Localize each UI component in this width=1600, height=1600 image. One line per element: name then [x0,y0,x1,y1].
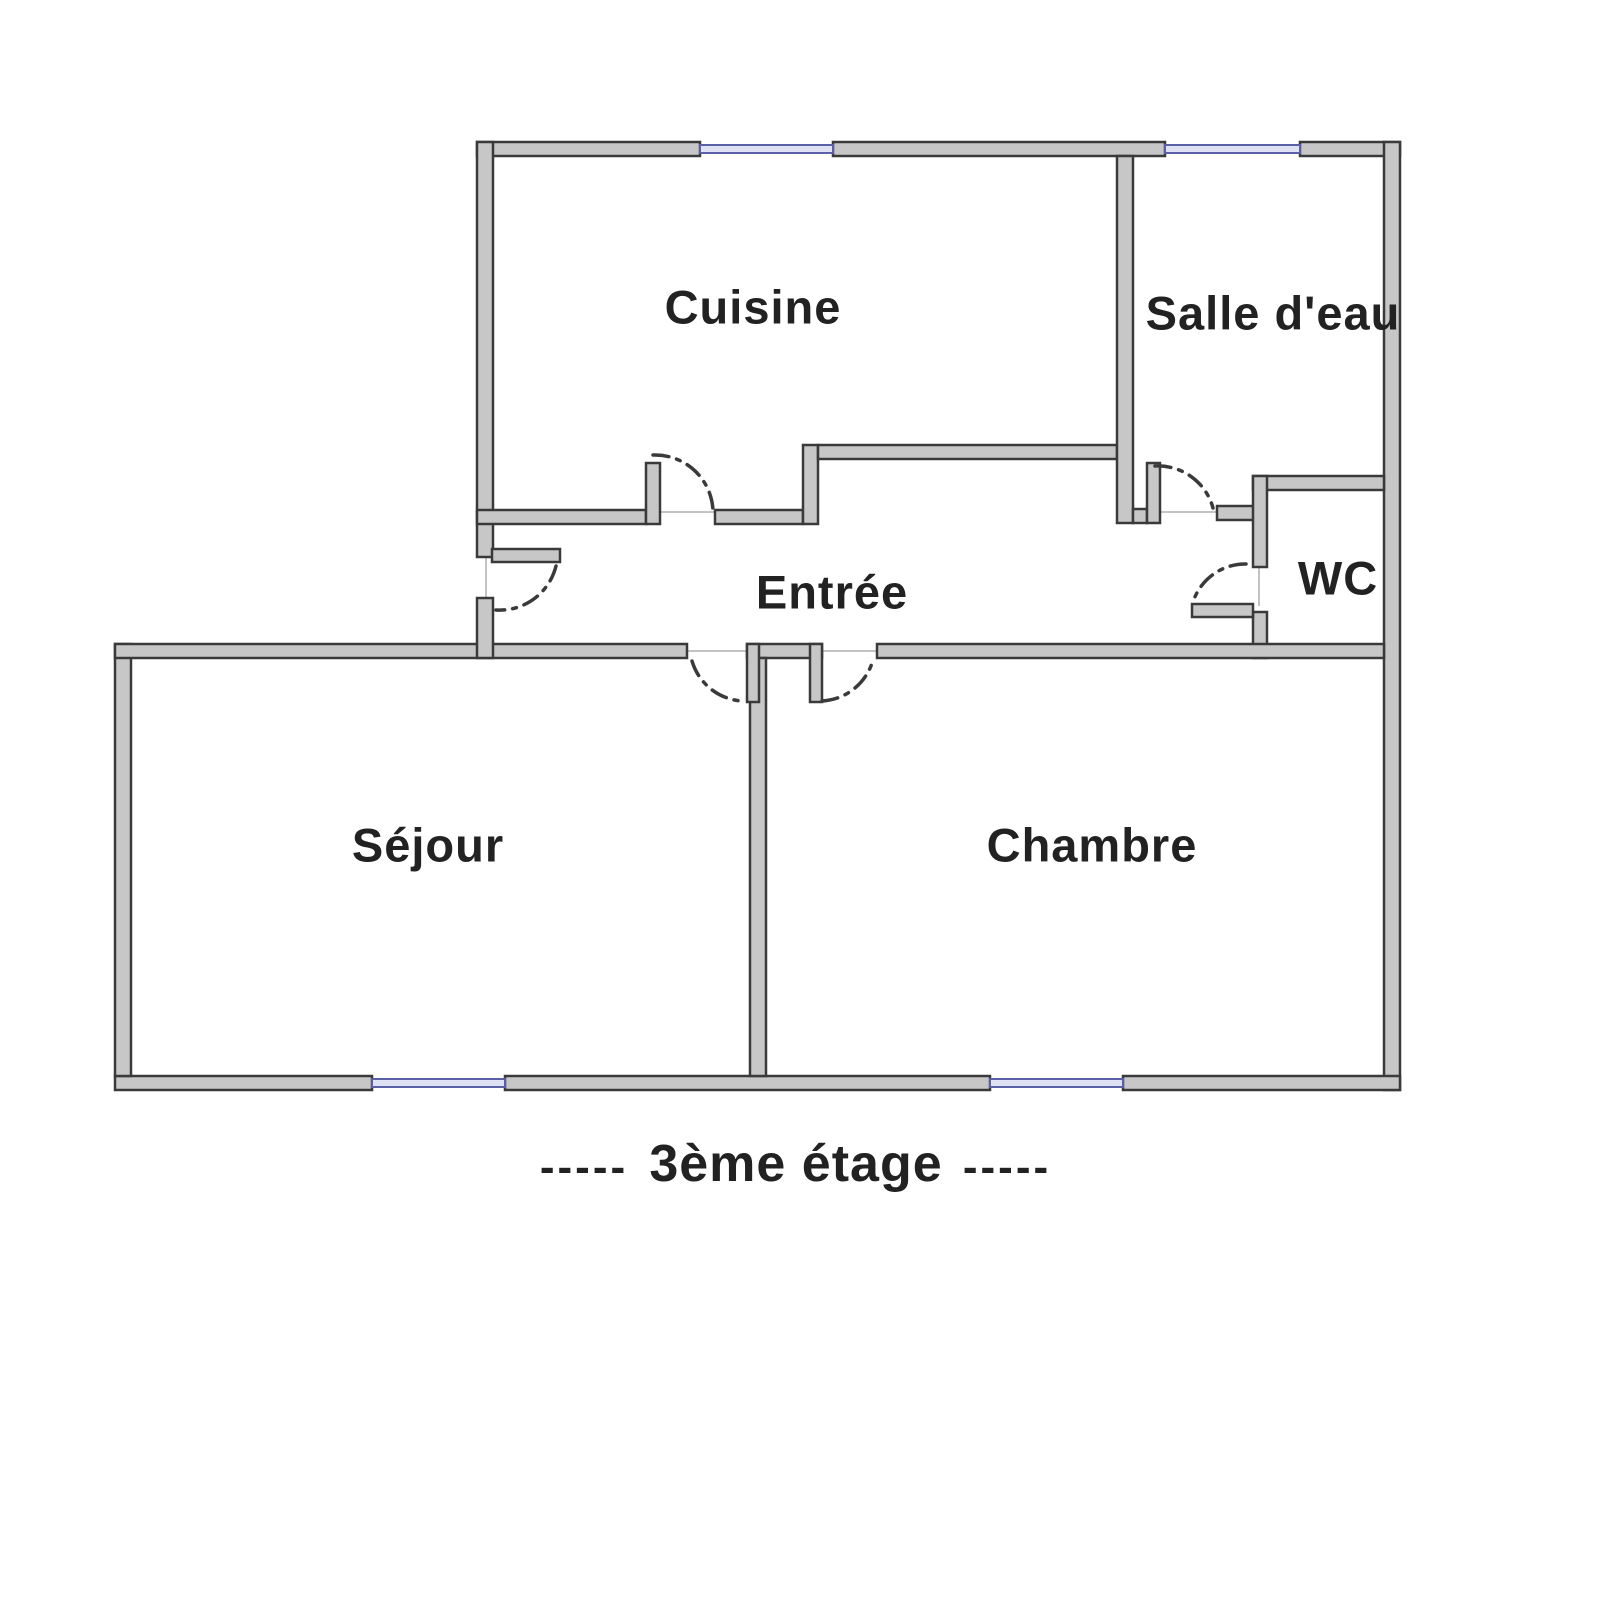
wall [1133,509,1147,523]
room-label-salle-deau: Salle d'eau [1146,287,1401,340]
wall [477,598,493,658]
door-leaf [492,549,560,562]
wall [477,142,493,557]
wall [1123,1076,1400,1090]
door-leaf [810,644,822,702]
window [700,145,833,153]
door-leaf [747,644,759,702]
door-swing-arc [496,566,556,610]
caption-dashes-left: ----- [540,1143,628,1192]
window [372,1079,505,1087]
door-swing-arc [1193,564,1246,602]
door-swing-arc [1155,466,1213,508]
caption-dashes-right: ----- [963,1143,1051,1192]
wall [115,644,687,658]
door-leaf [646,463,660,524]
wall [505,1076,990,1090]
door-leaf [1192,604,1253,617]
wall [1384,142,1400,1090]
wall [115,644,131,1076]
room-label-wc: WC [1298,552,1378,605]
door-swing-arc [692,661,742,701]
door-swing-arc [653,455,713,511]
door-swing-arc [822,660,873,701]
wall [818,445,1117,459]
room-label-entree: Entrée [756,566,908,619]
room-label-sejour: Séjour [352,819,504,872]
wall [877,644,1384,658]
wall [715,510,803,524]
wall [1253,476,1267,567]
floor-plan: CuisineSalle d'eauWCEntréeSéjourChambre-… [0,0,1600,1600]
door-leaf [1147,463,1160,523]
wall [750,658,766,1076]
wall [1253,476,1384,490]
wall [477,142,700,156]
wall [803,445,818,524]
wall [1117,156,1133,523]
caption-title: 3ème étage [649,1135,942,1193]
window [1165,145,1300,153]
wall [833,142,1165,156]
page-background: CuisineSalle d'eauWCEntréeSéjourChambre-… [0,0,1600,1600]
room-label-cuisine: Cuisine [665,281,842,334]
wall [477,510,646,524]
room-label-chambre: Chambre [987,819,1198,872]
wall [115,1076,372,1090]
window [990,1079,1123,1087]
